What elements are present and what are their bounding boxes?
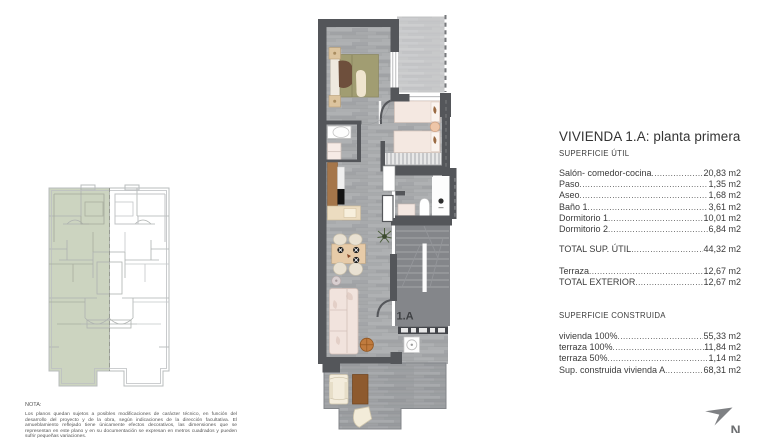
- svg-text:1.A: 1.A: [397, 311, 414, 323]
- svg-text:N: N: [731, 422, 741, 433]
